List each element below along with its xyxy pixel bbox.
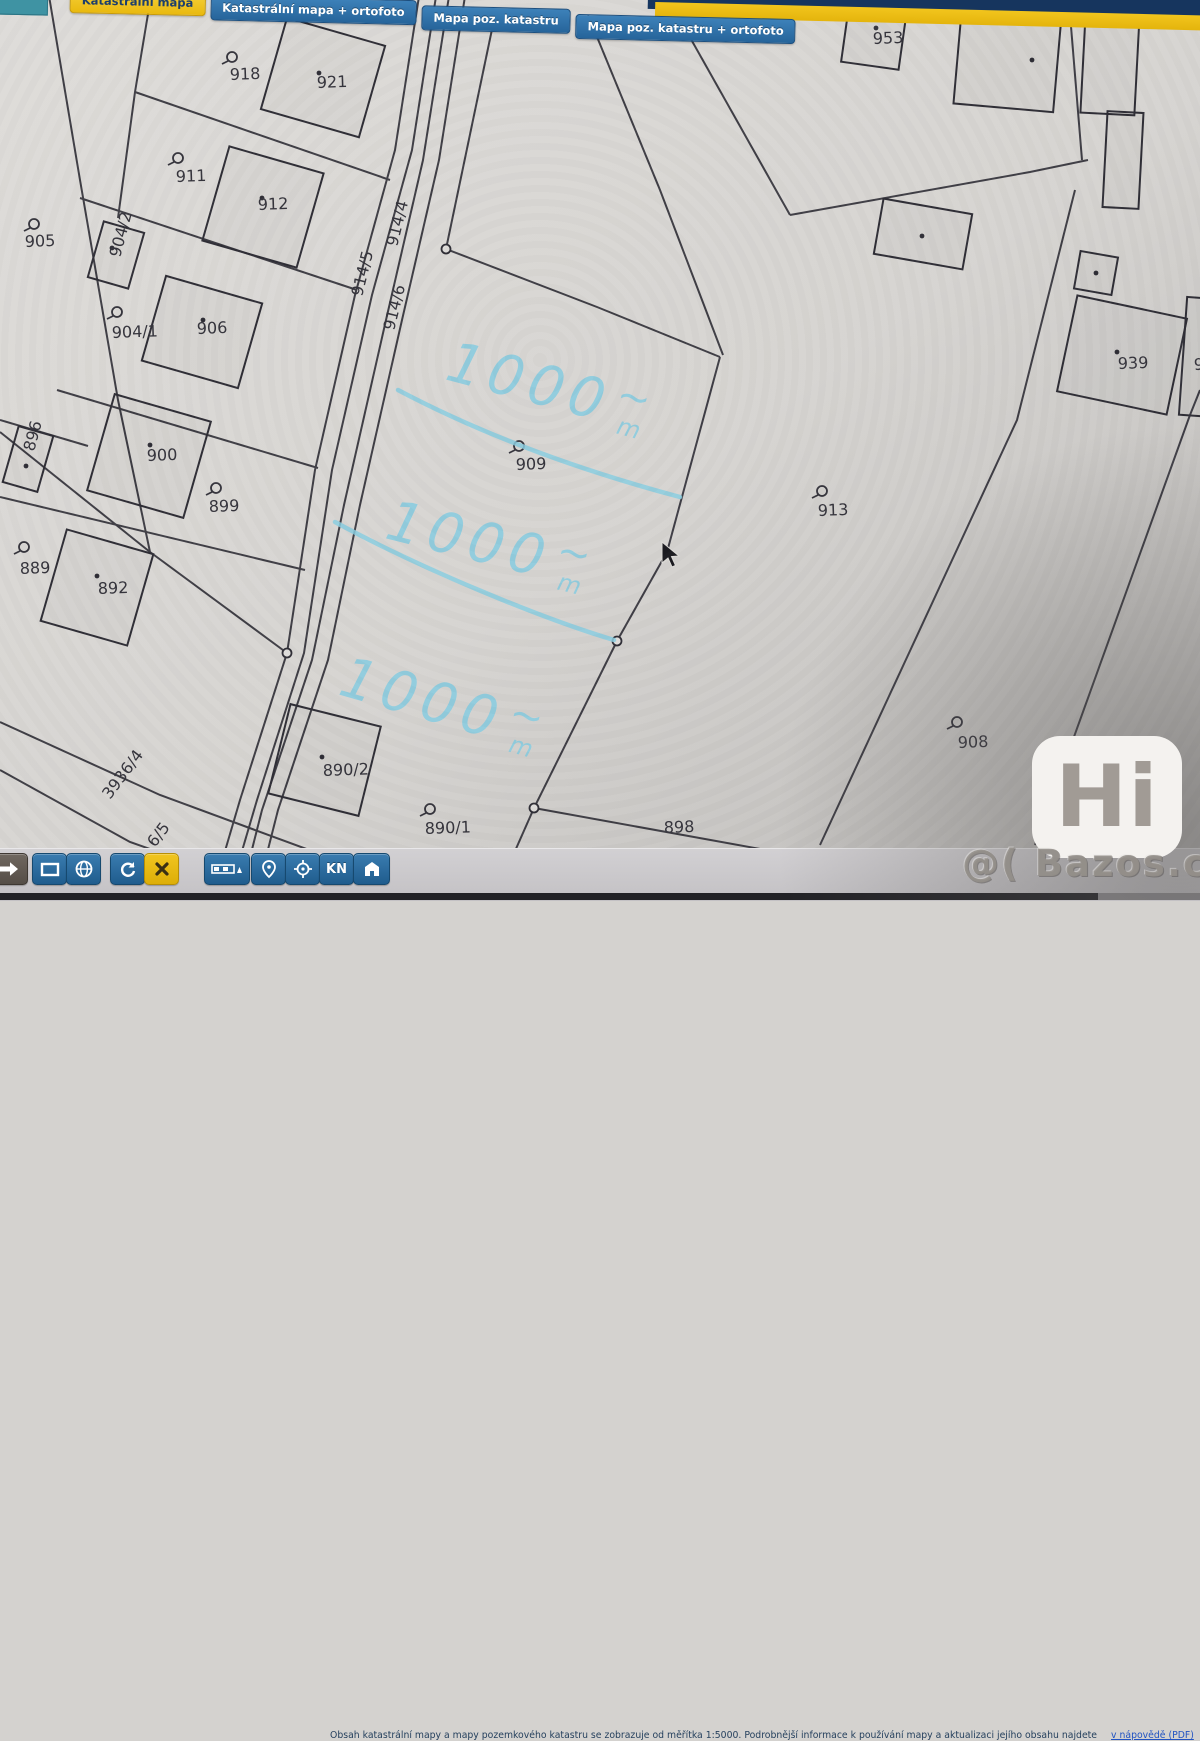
kn-button[interactable]: KN <box>319 853 354 885</box>
parcel-label: 913 <box>817 500 848 520</box>
tab-katastralni-mapa[interactable]: Katastrální mapa <box>70 0 206 16</box>
parcel-label: 909 <box>515 454 546 474</box>
globe-icon <box>74 859 94 879</box>
boundary-node <box>442 245 451 254</box>
help-pdf-link[interactable]: v nápovědě (PDF) <box>1111 1730 1194 1741</box>
tab-mapa-poz-katastru[interactable]: Mapa poz. katastru <box>421 5 571 34</box>
globe-button[interactable] <box>66 853 101 885</box>
building-outline <box>1103 111 1144 209</box>
tab-mapa-poz-katastru-ortofoto[interactable]: Mapa poz. katastru + ortofoto <box>575 14 796 44</box>
parcel-label: 899 <box>208 496 239 516</box>
parcel-label: 939 <box>1117 353 1148 373</box>
parcel-label: 890/2 <box>322 759 369 780</box>
bazos-watermark: @( Bazos.cz <box>962 842 1200 885</box>
parcel-label: 890/1 <box>424 817 471 838</box>
disclaimer-text: Obsah katastrální mapy a mapy pozemkovéh… <box>330 1730 1097 1741</box>
map-pin-icon <box>260 859 278 879</box>
parcel-label: 912 <box>257 194 288 214</box>
cadastral-map[interactable]: 918921911912905904/2904/1906896900899889… <box>0 0 1200 900</box>
extent-rectangle-button[interactable] <box>32 853 67 885</box>
kn-button-label: KN <box>326 862 347 877</box>
refresh-icon <box>118 859 138 879</box>
boundary-node <box>283 649 292 658</box>
boundary-node <box>530 804 539 813</box>
close-button[interactable] <box>144 853 179 885</box>
parcel-label: 889 <box>19 558 50 578</box>
corner-button-fragment <box>0 0 48 16</box>
bottom-dark-strip <box>0 893 1098 900</box>
parcel-label: 904/1 <box>111 321 158 342</box>
arrow-right-icon <box>0 861 20 877</box>
scale-bar-button[interactable] <box>204 853 250 885</box>
map-canvas[interactable]: 918921911912905904/2904/1906896900899889… <box>0 0 1200 900</box>
parcel-label: 905 <box>24 231 55 251</box>
footer-disclaimer: Obsah katastrální mapy a mapy pozemkovéh… <box>330 1730 1200 1741</box>
parcel-label: 953 <box>872 28 903 48</box>
scale-bar-icon <box>211 861 243 877</box>
parcel-label: 94 <box>1193 354 1200 374</box>
hi-watermark-logo: Hi <box>1032 736 1182 858</box>
tab-katastralni-mapa-ortofoto[interactable]: Katastrální mapa + ortofoto <box>210 0 417 25</box>
home-flag-icon <box>362 860 382 878</box>
parcel-label: 906 <box>196 318 227 338</box>
close-x-icon <box>154 861 170 877</box>
bottom-gray-strip <box>1098 893 1200 900</box>
crosshair-icon <box>293 859 313 879</box>
parcel-label: 908 <box>957 732 988 752</box>
home-flag-button[interactable] <box>353 853 390 885</box>
parcel-label: 911 <box>175 166 206 186</box>
place-pin-button[interactable] <box>251 853 286 885</box>
parcel-label: 918 <box>229 64 260 84</box>
parcel-label: 900 <box>146 445 177 465</box>
parcel-label: 921 <box>316 72 347 92</box>
parcel-label: 892 <box>97 578 128 598</box>
rectangle-extent-icon <box>40 862 60 877</box>
parcel-label: 898 <box>663 817 694 837</box>
crosshair-button[interactable] <box>285 853 320 885</box>
refresh-button[interactable] <box>110 853 145 885</box>
pan-arrow-button[interactable] <box>0 853 28 885</box>
